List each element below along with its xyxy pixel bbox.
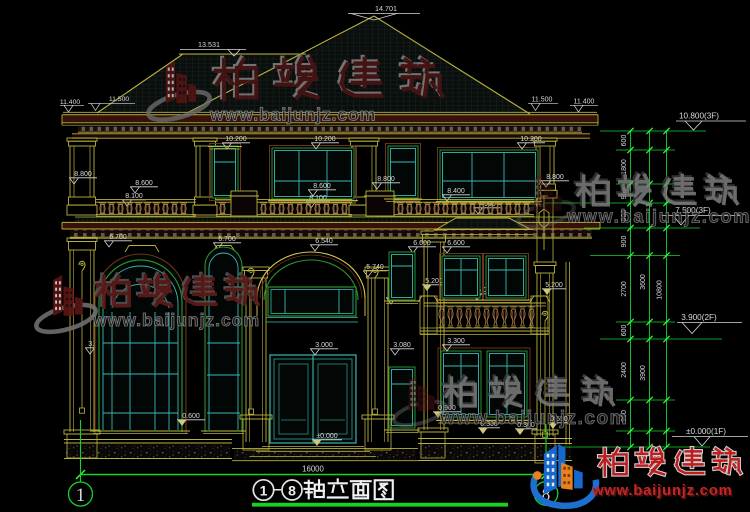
svg-text:www.baijunjz.com: www.baijunjz.com <box>209 105 376 125</box>
svg-text:8.100: 8.100 <box>125 193 143 200</box>
svg-text:±0.000(1F): ±0.000(1F) <box>686 427 726 436</box>
svg-text:8.800: 8.800 <box>546 174 564 181</box>
svg-text:0.600: 0.600 <box>182 413 200 420</box>
svg-text:11.500: 11.500 <box>109 96 130 103</box>
svg-text:6.600: 6.600 <box>413 240 431 247</box>
svg-text:11.400: 11.400 <box>60 99 81 106</box>
svg-text:www.baijunjz.com: www.baijunjz.com <box>566 207 750 227</box>
svg-text:16000: 16000 <box>302 465 324 474</box>
svg-text:3.080: 3.080 <box>393 342 411 349</box>
svg-text:6.600: 6.600 <box>447 240 465 247</box>
svg-text:8.400: 8.400 <box>447 188 465 195</box>
svg-text:1: 1 <box>76 485 86 506</box>
svg-text:11.500: 11.500 <box>532 97 553 104</box>
svg-text:www.baijunjz.com: www.baijunjz.com <box>439 408 628 429</box>
svg-text:3600: 3600 <box>640 274 647 290</box>
svg-text:10.200: 10.200 <box>520 136 542 143</box>
svg-text:6.700: 6.700 <box>218 236 236 243</box>
svg-text:5.200: 5.200 <box>545 282 563 289</box>
svg-text:±0.000: ±0.000 <box>316 433 337 440</box>
svg-text:13.531: 13.531 <box>198 40 220 49</box>
svg-text:www.baijunjz.com: www.baijunjz.com <box>591 483 733 499</box>
svg-text:900: 900 <box>621 236 628 248</box>
svg-text:www.baijunjz.com: www.baijunjz.com <box>92 310 260 330</box>
svg-text:8.800: 8.800 <box>74 171 92 178</box>
svg-text:3.300: 3.300 <box>447 338 465 345</box>
svg-text:10.800(3F): 10.800(3F) <box>679 112 719 121</box>
svg-text:2700: 2700 <box>621 281 628 297</box>
svg-text:3.900(2F): 3.900(2F) <box>681 313 717 322</box>
svg-text:10.200: 10.200 <box>314 136 336 143</box>
svg-text:10800: 10800 <box>657 280 664 300</box>
svg-text:8.800: 8.800 <box>377 176 395 183</box>
svg-text:1: 1 <box>260 483 268 499</box>
svg-text:600: 600 <box>621 135 628 147</box>
svg-text:2400: 2400 <box>621 362 628 378</box>
svg-text:3900: 3900 <box>640 365 647 381</box>
svg-text:6.700: 6.700 <box>109 234 127 241</box>
svg-text:8: 8 <box>288 483 296 499</box>
svg-text:10.200: 10.200 <box>225 136 247 143</box>
svg-text:–: – <box>273 481 281 498</box>
svg-text:600: 600 <box>621 325 628 337</box>
svg-text:14.701: 14.701 <box>375 4 397 13</box>
svg-text:11.400: 11.400 <box>574 99 595 106</box>
svg-text:3.000: 3.000 <box>315 342 333 349</box>
svg-text:8.600: 8.600 <box>135 180 153 187</box>
svg-text:8.600: 8.600 <box>313 183 331 190</box>
svg-text:6.540: 6.540 <box>315 238 333 245</box>
